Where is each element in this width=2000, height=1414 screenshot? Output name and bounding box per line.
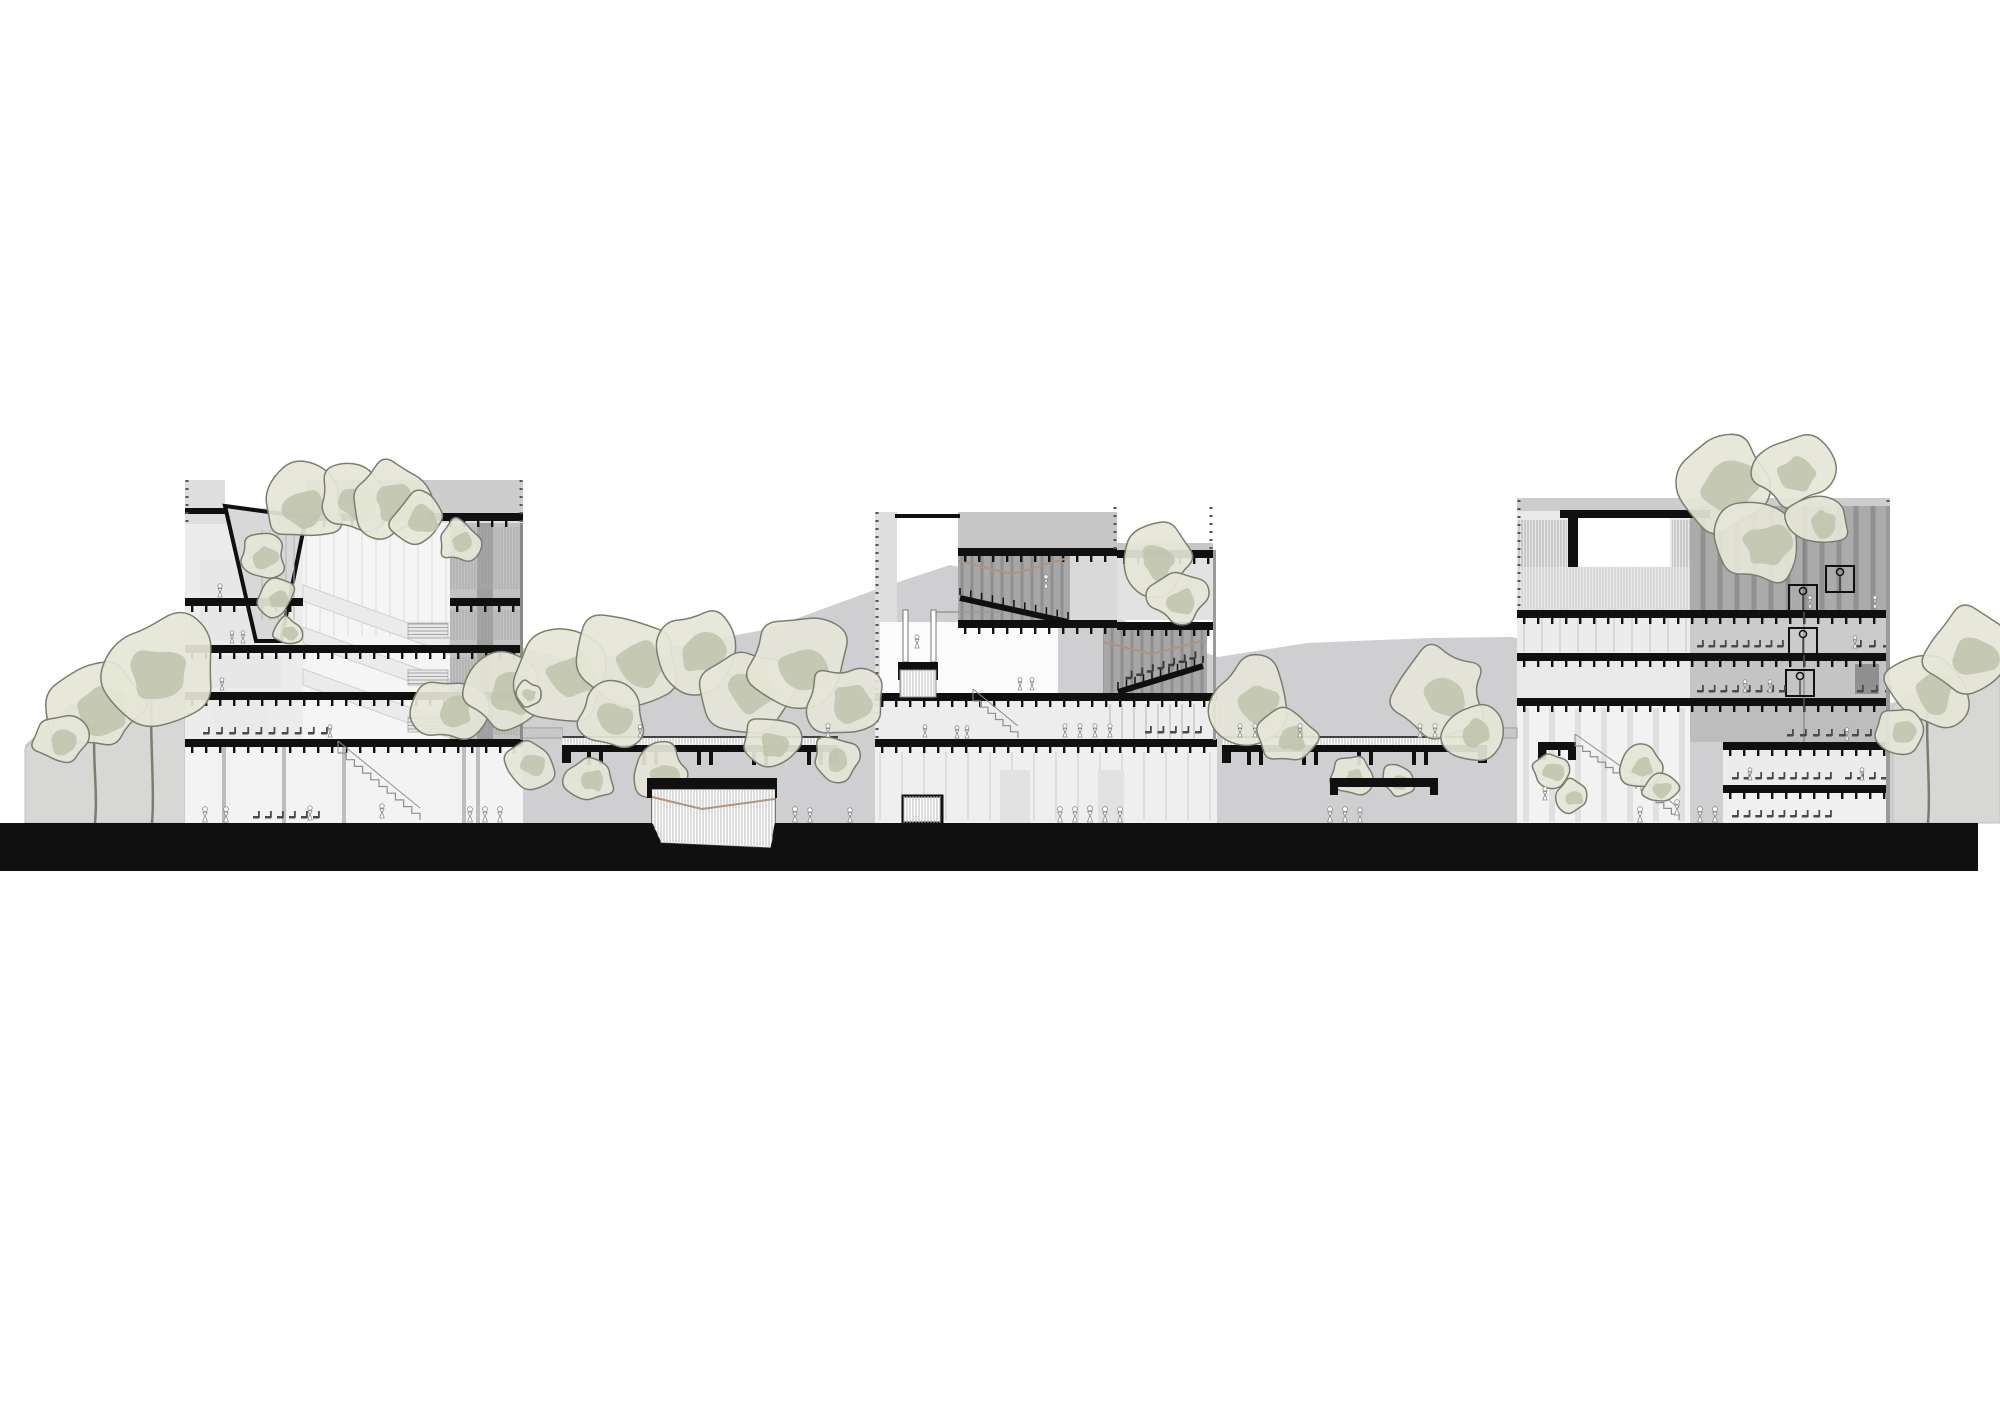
ground-plane (0, 823, 1978, 871)
architectural-section-drawing (0, 0, 2000, 1414)
section-canvas (0, 0, 2000, 1414)
